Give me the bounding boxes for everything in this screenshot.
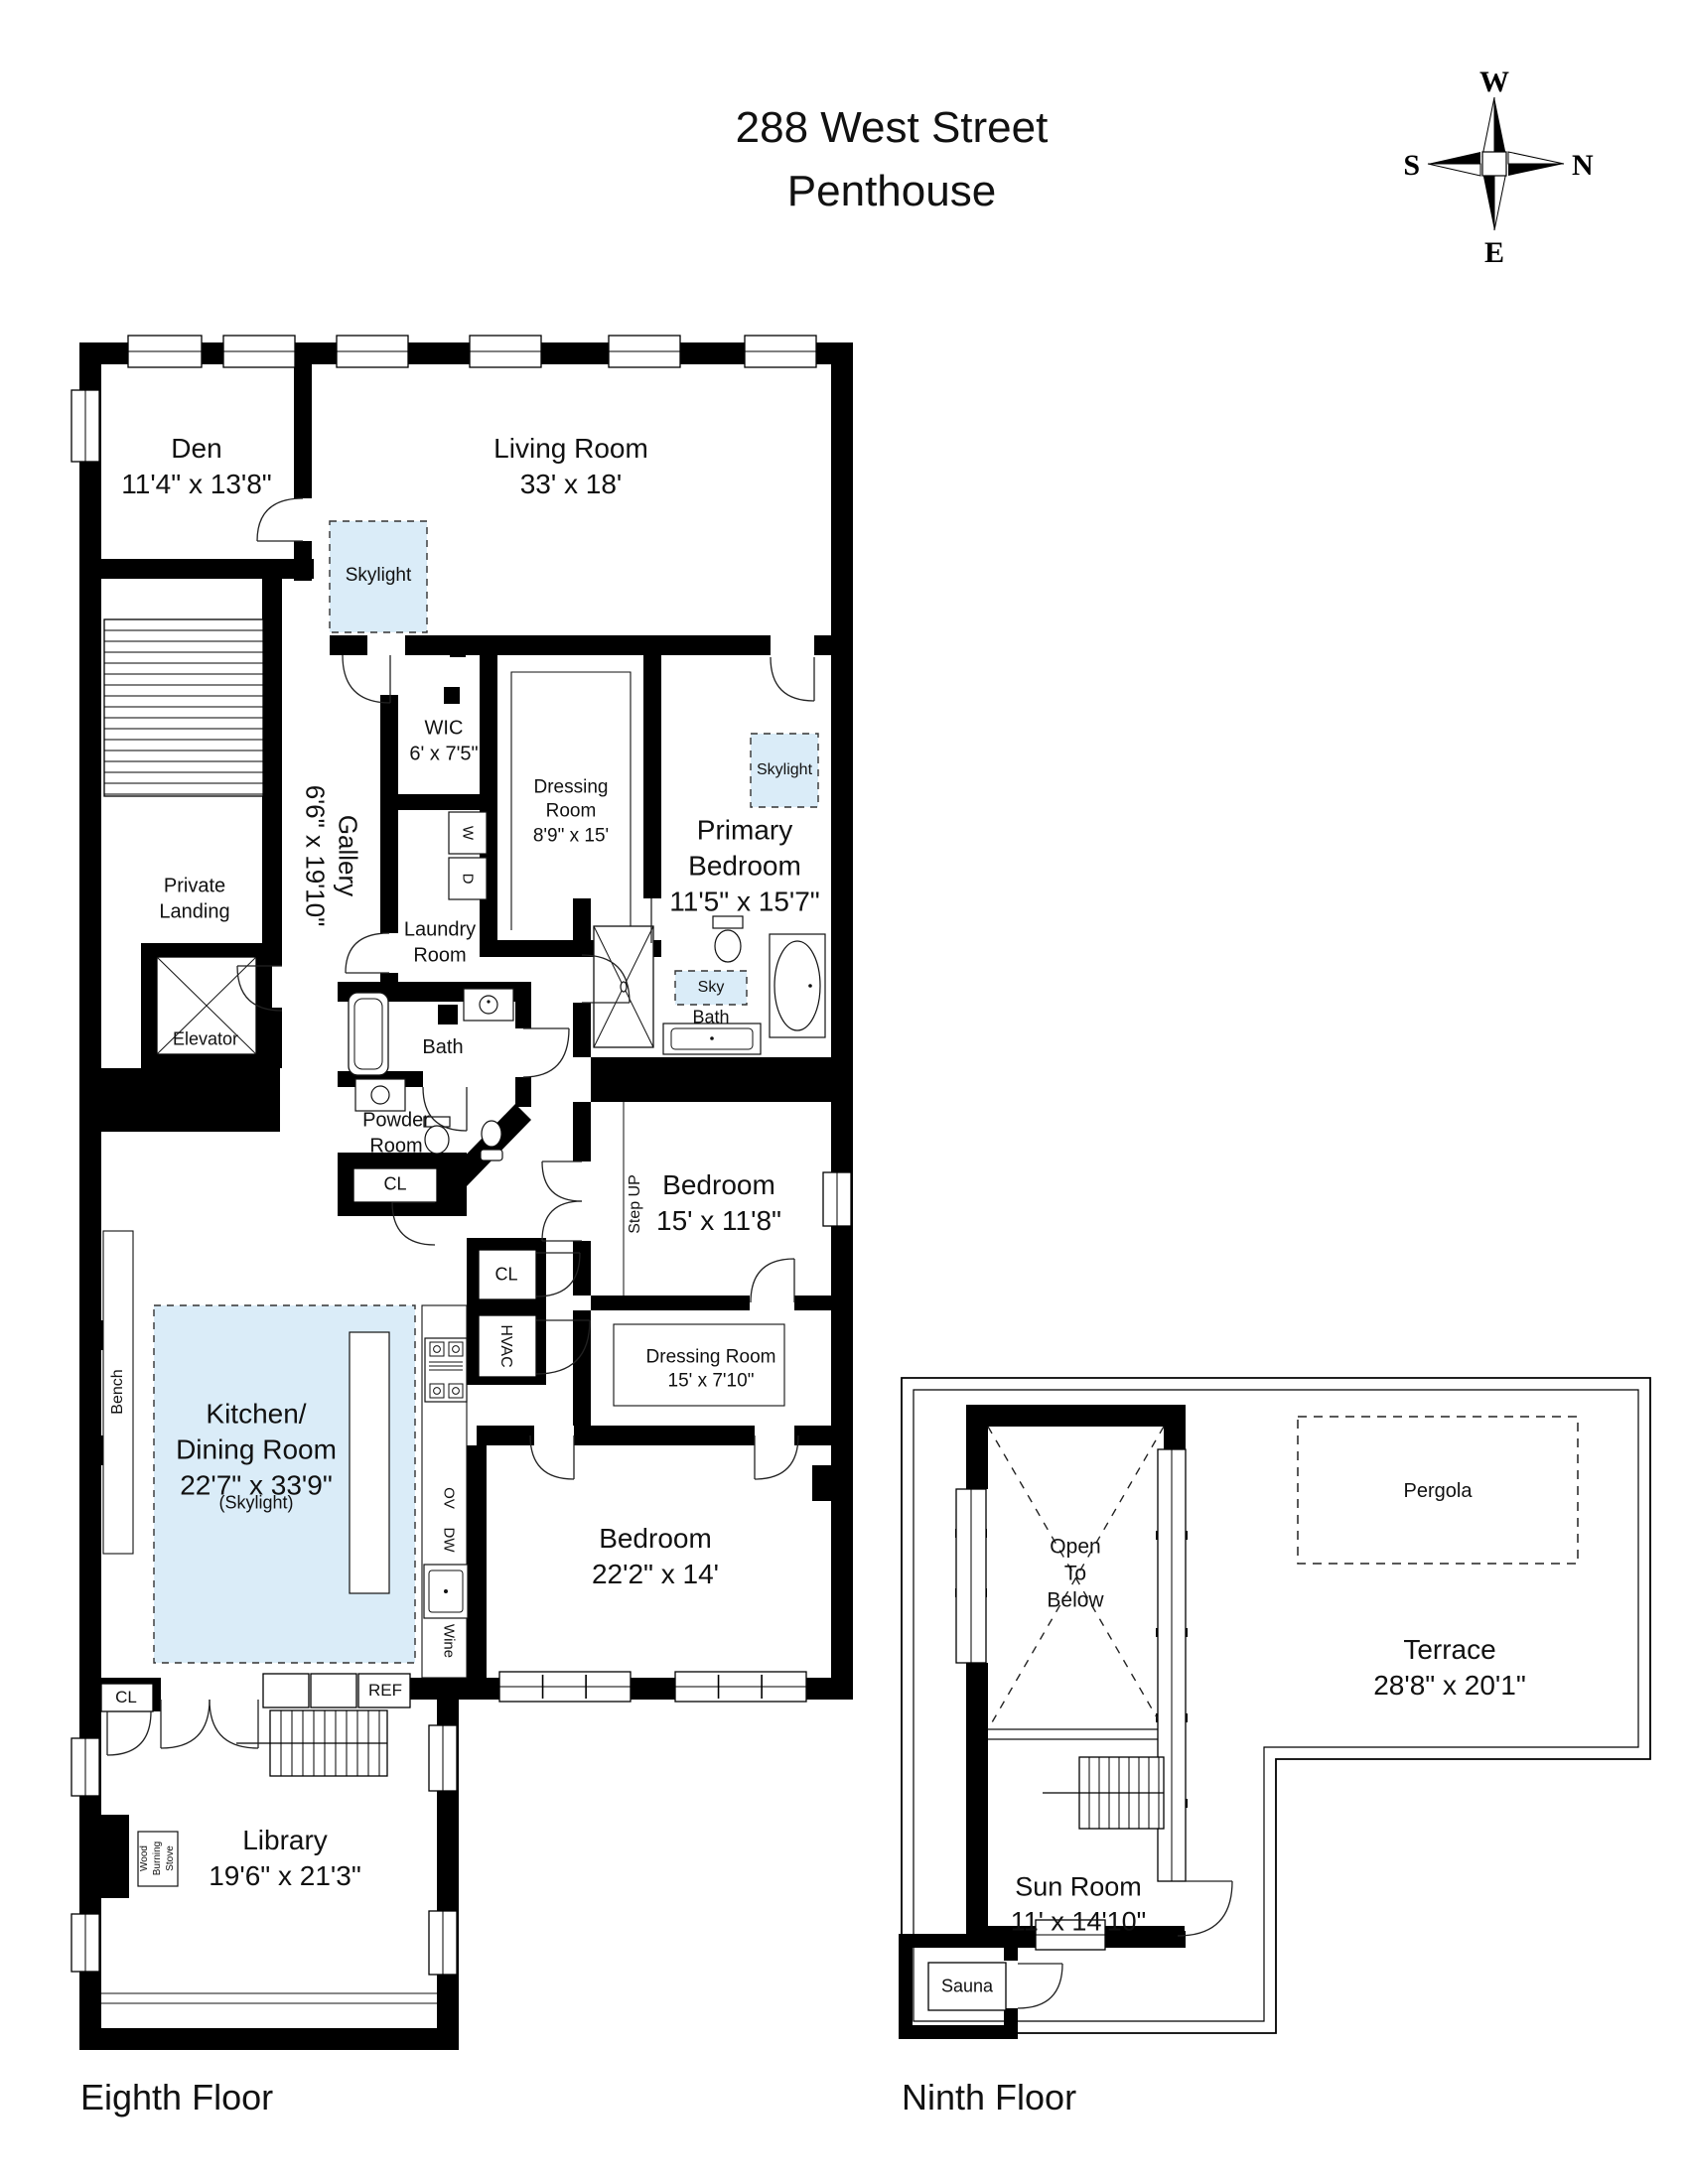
- refrigerator-label-text: REF: [368, 1680, 402, 1702]
- open-to-below-label-text: Open: [1047, 1535, 1103, 1562]
- gallery-label-text: Gallery: [331, 785, 363, 927]
- library-label-text: Library: [209, 1823, 361, 1858]
- open-to-below-label-text: To: [1047, 1562, 1103, 1588]
- closet-label-library: CL: [115, 1687, 137, 1708]
- dryer-label: D: [458, 874, 477, 885]
- bath-label: Bath: [422, 1035, 463, 1061]
- sauna-label: Sauna: [941, 1975, 993, 1997]
- kitchen-skylight-note-text: (Skylight): [218, 1491, 293, 1514]
- washer-label-text: W: [458, 826, 477, 840]
- gallery-label: Gallery6'6" x 19'10": [298, 785, 364, 927]
- dressing-room-1-label-text: 8'9" x 15': [533, 824, 609, 848]
- step-up-label-text: Step UP: [626, 1174, 645, 1234]
- bedroom-2-label-text: Bedroom: [592, 1521, 719, 1557]
- terrace-label-text: 28'8" x 20'1": [1373, 1668, 1526, 1704]
- powder-room-label-text: Powder: [362, 1108, 430, 1134]
- plan-labels: Den11'4" x 13'8"Living Room33' x 18'Skyl…: [0, 0, 1688, 2184]
- bath-label-text: Bath: [422, 1035, 463, 1061]
- sauna-label-text: Sauna: [941, 1975, 993, 1997]
- laundry-room-label-text: Laundry: [404, 917, 476, 943]
- wood-burning-stove-label-text: Wood: [139, 1842, 152, 1875]
- sky-label-text: Sky: [698, 978, 725, 998]
- kitchen-dining-label-text: Kitchen/: [176, 1396, 337, 1432]
- wine-fridge-label-text: Wine: [439, 1624, 458, 1658]
- dressing-room-1-label-text: Dressing: [533, 776, 609, 800]
- pergola-label: Pergola: [1404, 1479, 1473, 1505]
- dressing-room-1-label: DressingRoom8'9" x 15': [533, 776, 609, 849]
- step-up-label: Step UP: [626, 1174, 645, 1234]
- kitchen-dining-label: Kitchen/Dining Room22'7" x 33'9": [176, 1396, 337, 1502]
- dressing-room-2-label-text: Dressing Room: [646, 1346, 776, 1370]
- open-to-below-label: OpenToBelow: [1047, 1535, 1103, 1615]
- hvac-label-text: HVAC: [495, 1324, 515, 1367]
- sun-room-label: Sun Room11' x 14'10": [1011, 1869, 1147, 1938]
- sun-room-label-text: Sun Room: [1011, 1869, 1147, 1904]
- open-to-below-label-text: Below: [1047, 1587, 1103, 1614]
- wood-burning-stove-label-text: Stove: [164, 1842, 177, 1875]
- hvac-label: HVAC: [495, 1324, 515, 1367]
- wine-fridge-label: Wine: [439, 1624, 458, 1658]
- bench-label: Bench: [108, 1369, 128, 1414]
- dressing-room-1-label-text: Room: [533, 800, 609, 824]
- wic-label: WIC6' x 7'5": [409, 716, 478, 766]
- primary-bedroom-label-text: Primary: [669, 812, 819, 848]
- dryer-label-text: D: [458, 874, 477, 885]
- kitchen-skylight-note: (Skylight): [218, 1491, 293, 1514]
- bench-label-text: Bench: [108, 1369, 128, 1414]
- private-landing-label-text: Private: [159, 874, 229, 899]
- bath-2-label: Bath: [692, 1006, 729, 1028]
- wic-label-text: WIC: [409, 716, 478, 742]
- pergola-label-text: Pergola: [1404, 1479, 1473, 1505]
- primary-bedroom-label-text: Bedroom: [669, 848, 819, 884]
- skylight-2-label: Skylight: [757, 760, 812, 780]
- bedroom-1-label-text: 15' x 11'8": [656, 1203, 781, 1239]
- private-landing-label-text: Landing: [159, 899, 229, 925]
- living-room-label: Living Room33' x 18': [493, 431, 648, 502]
- skylight-label-text: Skylight: [346, 564, 412, 588]
- bedroom-2-label-text: 22'2" x 14': [592, 1557, 719, 1592]
- bedroom-1-label-text: Bedroom: [656, 1167, 781, 1203]
- oven-label: OV: [439, 1487, 458, 1509]
- dressing-room-2-label-text: 15' x 7'10": [646, 1370, 776, 1394]
- terrace-label-text: Terrace: [1373, 1632, 1526, 1668]
- sun-room-label-text: 11' x 14'10": [1011, 1904, 1147, 1939]
- primary-bedroom-label: PrimaryBedroom11'5" x 15'7": [669, 812, 819, 918]
- library-label-text: 19'6" x 21'3": [209, 1858, 361, 1894]
- closet-label-hall-text: CL: [494, 1263, 517, 1286]
- laundry-room-label-text: Room: [404, 943, 476, 969]
- oven-label-text: OV: [439, 1487, 458, 1509]
- laundry-room-label: LaundryRoom: [404, 917, 476, 968]
- floorplan-page: 288 West Street Penthouse W N E S Den11'…: [0, 0, 1688, 2184]
- den-label-text: Den: [121, 431, 271, 467]
- powder-room-label: PowderRoom: [362, 1108, 430, 1159]
- wood-burning-stove-label: WoodBurningStove: [139, 1842, 177, 1875]
- ninth-floor-caption: Ninth Floor: [902, 2077, 1076, 2118]
- elevator-label-text: Elevator: [173, 1027, 238, 1050]
- bedroom-1-label: Bedroom15' x 11'8": [656, 1167, 781, 1239]
- living-room-label-text: 33' x 18': [493, 467, 648, 502]
- powder-room-label-text: Room: [362, 1134, 430, 1160]
- wic-label-text: 6' x 7'5": [409, 742, 478, 767]
- elevator-label: Elevator: [173, 1027, 238, 1050]
- closet-label-library-text: CL: [115, 1687, 137, 1708]
- terrace-label: Terrace28'8" x 20'1": [1373, 1632, 1526, 1704]
- closet-label-powder: CL: [383, 1172, 406, 1195]
- dishwasher-label-text: DW: [439, 1528, 458, 1553]
- living-room-label-text: Living Room: [493, 431, 648, 467]
- eighth-floor-caption: Eighth Floor: [80, 2077, 273, 2118]
- kitchen-dining-label-text: Dining Room: [176, 1432, 337, 1467]
- den-label-text: 11'4" x 13'8": [121, 467, 271, 502]
- wood-burning-stove-label-text: Burning: [152, 1842, 165, 1875]
- refrigerator-label: REF: [368, 1680, 402, 1702]
- closet-label-hall: CL: [494, 1263, 517, 1286]
- den-label: Den11'4" x 13'8": [121, 431, 271, 502]
- sky-label: Sky: [698, 978, 725, 998]
- gallery-label-text: 6'6" x 19'10": [298, 785, 331, 927]
- primary-bedroom-label-text: 11'5" x 15'7": [669, 884, 819, 919]
- skylight-label: Skylight: [346, 564, 412, 588]
- library-label: Library19'6" x 21'3": [209, 1823, 361, 1894]
- skylight-2-label-text: Skylight: [757, 760, 812, 780]
- dishwasher-label: DW: [439, 1528, 458, 1553]
- dressing-room-2-label: Dressing Room15' x 7'10": [646, 1346, 776, 1395]
- private-landing-label: PrivateLanding: [159, 874, 229, 924]
- closet-label-powder-text: CL: [383, 1172, 406, 1195]
- bath-2-label-text: Bath: [692, 1006, 729, 1028]
- bedroom-2-label: Bedroom22'2" x 14': [592, 1521, 719, 1592]
- washer-label: W: [458, 826, 477, 840]
